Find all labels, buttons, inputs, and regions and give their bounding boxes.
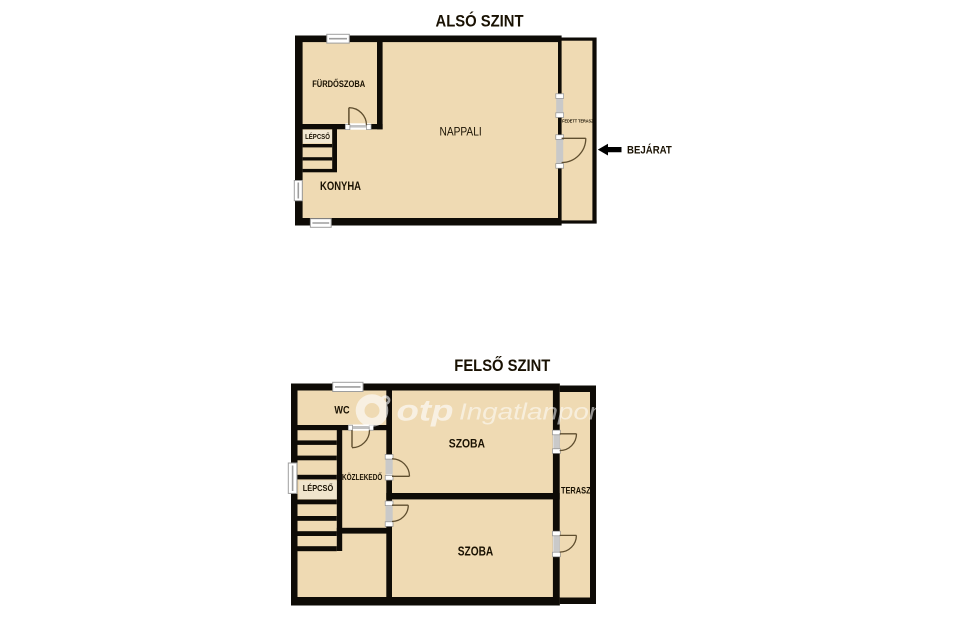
svg-text:SZOBA: SZOBA	[449, 436, 485, 450]
svg-text:SZOBA: SZOBA	[458, 543, 494, 558]
svg-text:ALSÓ SZINT: ALSÓ SZINT	[436, 12, 524, 31]
svg-text:BEJÁRAT: BEJÁRAT	[627, 143, 672, 156]
svg-text:WC: WC	[334, 404, 349, 416]
svg-text:Ingatlanpont: Ingatlanpont	[459, 399, 614, 425]
svg-text:NAPPALI: NAPPALI	[440, 125, 482, 139]
svg-text:FÜRDŐSZOBA: FÜRDŐSZOBA	[312, 78, 365, 90]
svg-text:TERASZ: TERASZ	[561, 485, 591, 495]
svg-text:KÖZLEKEDŐ: KÖZLEKEDŐ	[342, 473, 382, 482]
svg-text:KONYHA: KONYHA	[320, 179, 361, 193]
svg-text:LÉPCSŐ: LÉPCSŐ	[305, 132, 330, 141]
svg-text:FEDETT TERASZ: FEDETT TERASZ	[562, 118, 593, 123]
svg-text:otp: otp	[397, 395, 454, 428]
svg-text:LÉPCSŐ: LÉPCSŐ	[303, 482, 334, 493]
svg-text:FELSŐ SZINT: FELSŐ SZINT	[454, 356, 550, 375]
